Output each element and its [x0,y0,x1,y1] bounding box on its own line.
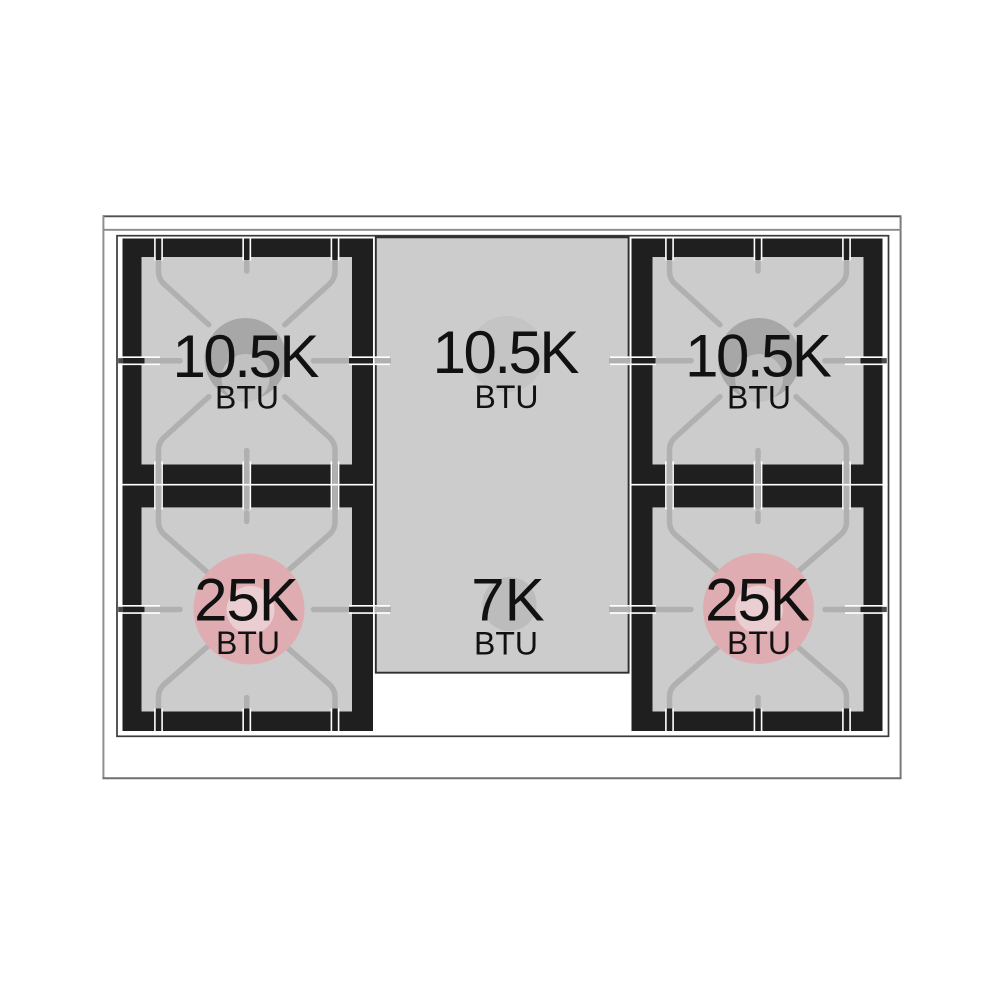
svg-text:BTU: BTU [216,625,280,661]
svg-text:BTU: BTU [727,625,791,661]
svg-text:7K: 7K [471,567,544,634]
svg-text:BTU: BTU [215,380,279,416]
svg-text:BTU: BTU [474,626,538,662]
svg-text:25K: 25K [194,567,299,634]
svg-text:25K: 25K [705,567,810,634]
svg-text:BTU: BTU [475,379,539,415]
svg-text:10.5K: 10.5K [433,319,580,386]
svg-text:BTU: BTU [727,380,791,416]
